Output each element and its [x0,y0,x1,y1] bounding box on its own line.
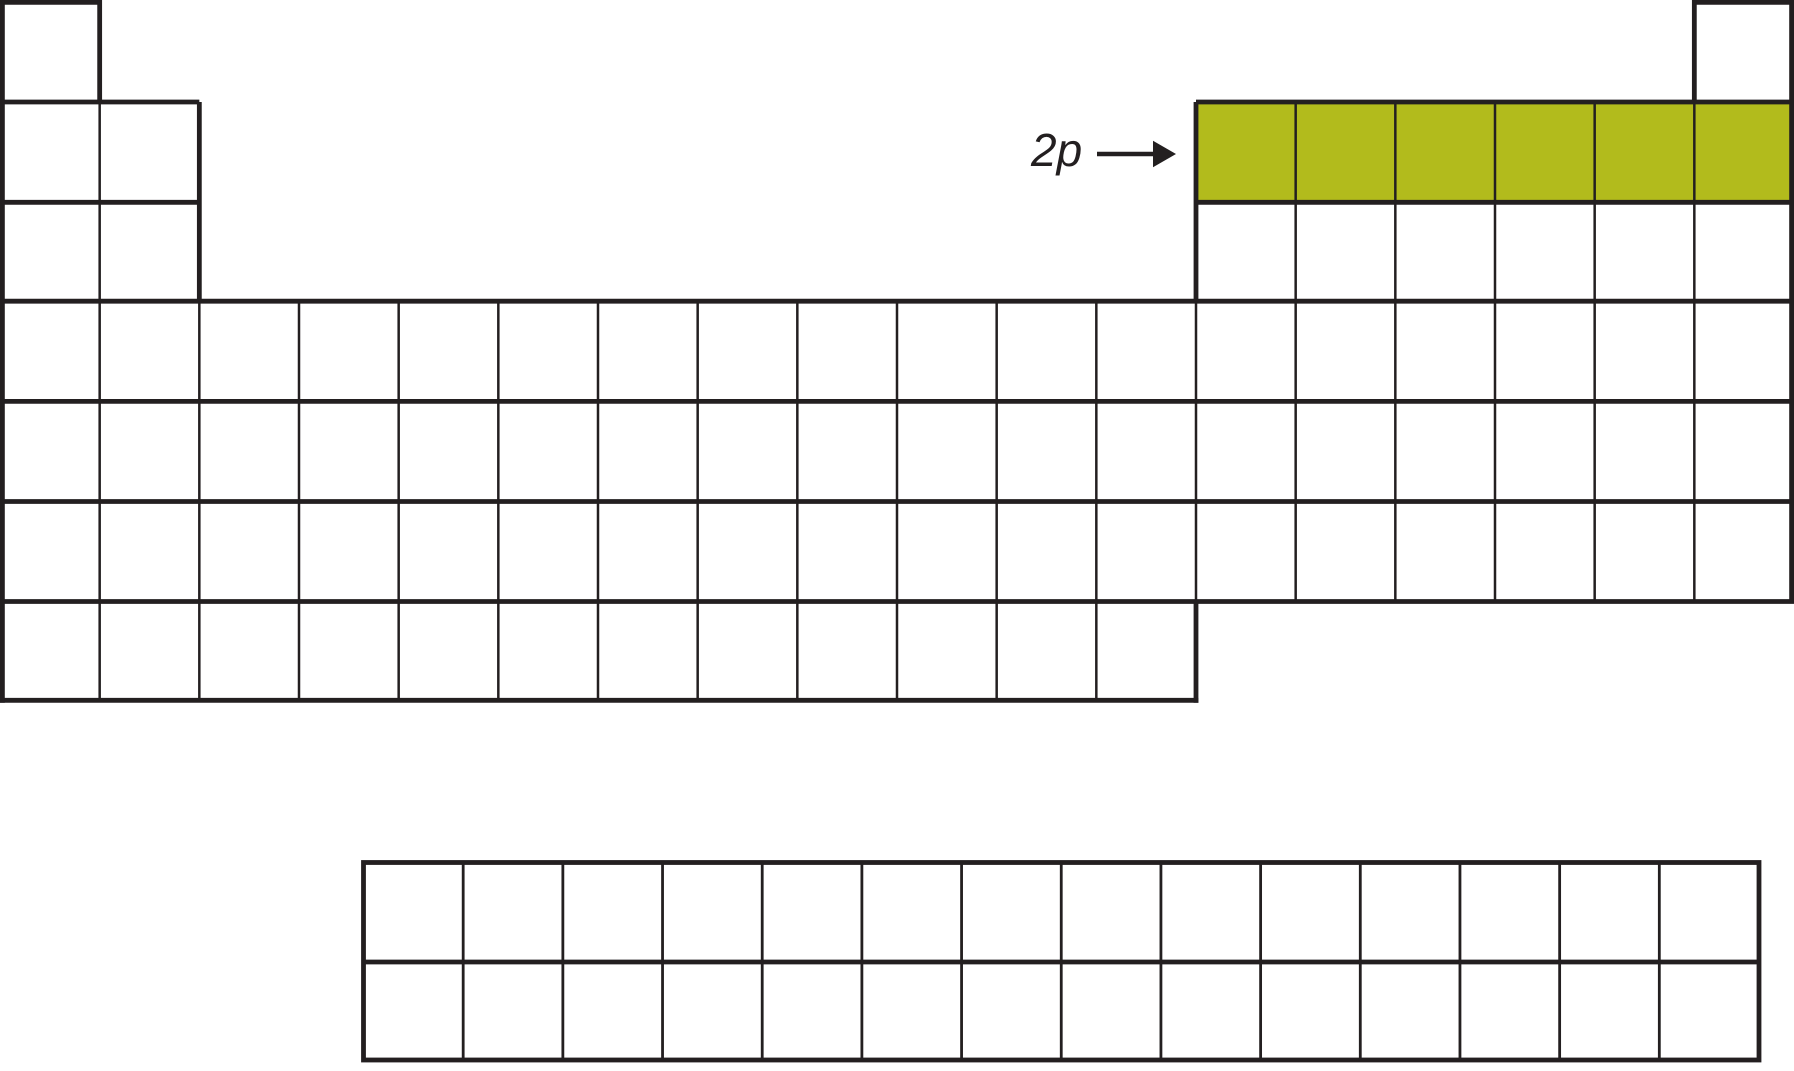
svg-text:2p: 2p [1030,124,1082,176]
